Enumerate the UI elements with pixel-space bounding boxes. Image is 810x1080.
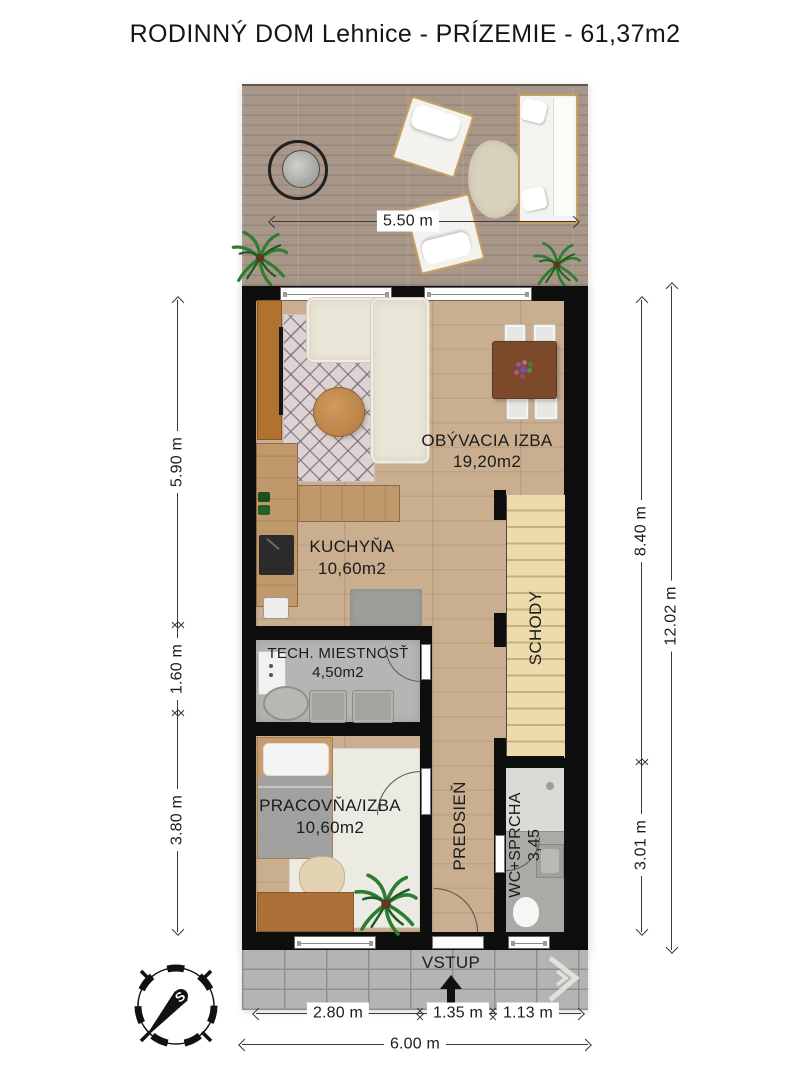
lounge-chair — [405, 193, 485, 275]
dim-right-total: 12.02 m — [661, 580, 682, 651]
watermark-logo-icon — [546, 954, 580, 1004]
palm-plant-icon — [530, 238, 584, 292]
flower-bouquet — [520, 366, 527, 373]
kitchen-mat — [350, 589, 422, 627]
dim-bottom-total: 6.00 m — [384, 1034, 446, 1055]
door-bathroom — [495, 835, 505, 873]
small-appliance — [263, 597, 289, 619]
compass-icon: S — [128, 958, 224, 1054]
dim-bottom-2: 1.35 m — [427, 1003, 489, 1024]
lounge-chair-pillow — [409, 103, 462, 141]
kitchen-counter — [256, 443, 298, 607]
entrance-arrow-icon — [440, 975, 462, 989]
boiler-knobs — [269, 664, 273, 668]
entrance-door — [432, 936, 484, 949]
dim-right-1: 8.40 m — [631, 500, 652, 562]
coffee-table — [313, 387, 365, 437]
sofa-pillow — [520, 97, 549, 124]
dim-left-3: 3.80 m — [167, 789, 188, 851]
terrace-deck: 5.50 m — [242, 84, 588, 288]
window-icon — [424, 287, 532, 301]
entrance-label: VSTUP — [422, 953, 480, 973]
bathroom-name: WC+SPRCHA — [506, 792, 525, 897]
bed-blanket — [258, 776, 332, 858]
bathroom-label: WC+SPRCHA 3,45 — [506, 792, 544, 897]
lounge-chair-pillow — [420, 231, 472, 266]
dim-left-2: 1.60 m — [167, 638, 188, 700]
dim-right-2: 3.01 m — [631, 814, 652, 876]
dining-chair — [506, 397, 529, 420]
kitchen-plants — [258, 492, 270, 502]
floor-plan-canvas: RODINNÝ DOM Lehnice - PRÍZEMIE - 61,37m2 — [0, 0, 810, 1080]
bathroom-area: 3,45 — [525, 792, 544, 897]
page-title: RODINNÝ DOM Lehnice - PRÍZEMIE - 61,37m2 — [0, 20, 810, 49]
shower-drain — [546, 782, 554, 790]
wall-tech-top — [242, 626, 432, 640]
tech-room-area: 4,50m2 — [312, 663, 364, 683]
hanging-chair — [268, 140, 328, 200]
toilet — [512, 896, 540, 928]
hall-label: PREDSIEŇ — [450, 781, 470, 870]
wall-stub — [494, 613, 506, 647]
desk — [257, 892, 354, 932]
living-room-label: OBÝVACIA IZBA — [421, 431, 552, 451]
window-icon — [294, 936, 376, 949]
kitchen-label: KUCHYŇA — [309, 537, 394, 557]
hanging-chair-cushion — [282, 150, 320, 188]
dining-chair — [534, 397, 558, 420]
palm-plant-icon — [228, 226, 292, 290]
cooktop-sink — [259, 535, 294, 575]
kitchen-area: 10,60m2 — [318, 559, 386, 579]
study-area: 10,60m2 — [296, 818, 364, 838]
tv-cabinet — [257, 300, 282, 440]
palm-plant-icon — [348, 868, 424, 940]
window-icon — [508, 936, 550, 949]
sofa-seat — [553, 98, 574, 216]
dim-bottom-1: 2.80 m — [307, 1003, 369, 1024]
lounge-chair — [391, 95, 474, 178]
dim-terrace-width: 5.50 m — [377, 211, 439, 232]
door-study — [421, 768, 431, 815]
living-room-area: 19,20m2 — [453, 452, 521, 472]
utility-basin — [263, 686, 309, 721]
sofa-pillow — [520, 186, 548, 213]
terrace-sofa — [518, 94, 578, 224]
faucet — [266, 538, 280, 550]
dryer — [352, 690, 394, 723]
bed-pillow — [263, 743, 329, 776]
entry-pavement — [242, 950, 588, 1010]
dim-bottom-3: 1.13 m — [497, 1003, 559, 1024]
stairs-label: SCHODY — [526, 591, 546, 666]
washing-machine — [309, 690, 347, 723]
blanket-fold — [258, 786, 332, 788]
wall-stub — [494, 490, 506, 520]
dim-left-1: 5.90 m — [167, 431, 188, 493]
door-tech — [421, 644, 431, 680]
wall-tech-bottom — [242, 722, 432, 736]
